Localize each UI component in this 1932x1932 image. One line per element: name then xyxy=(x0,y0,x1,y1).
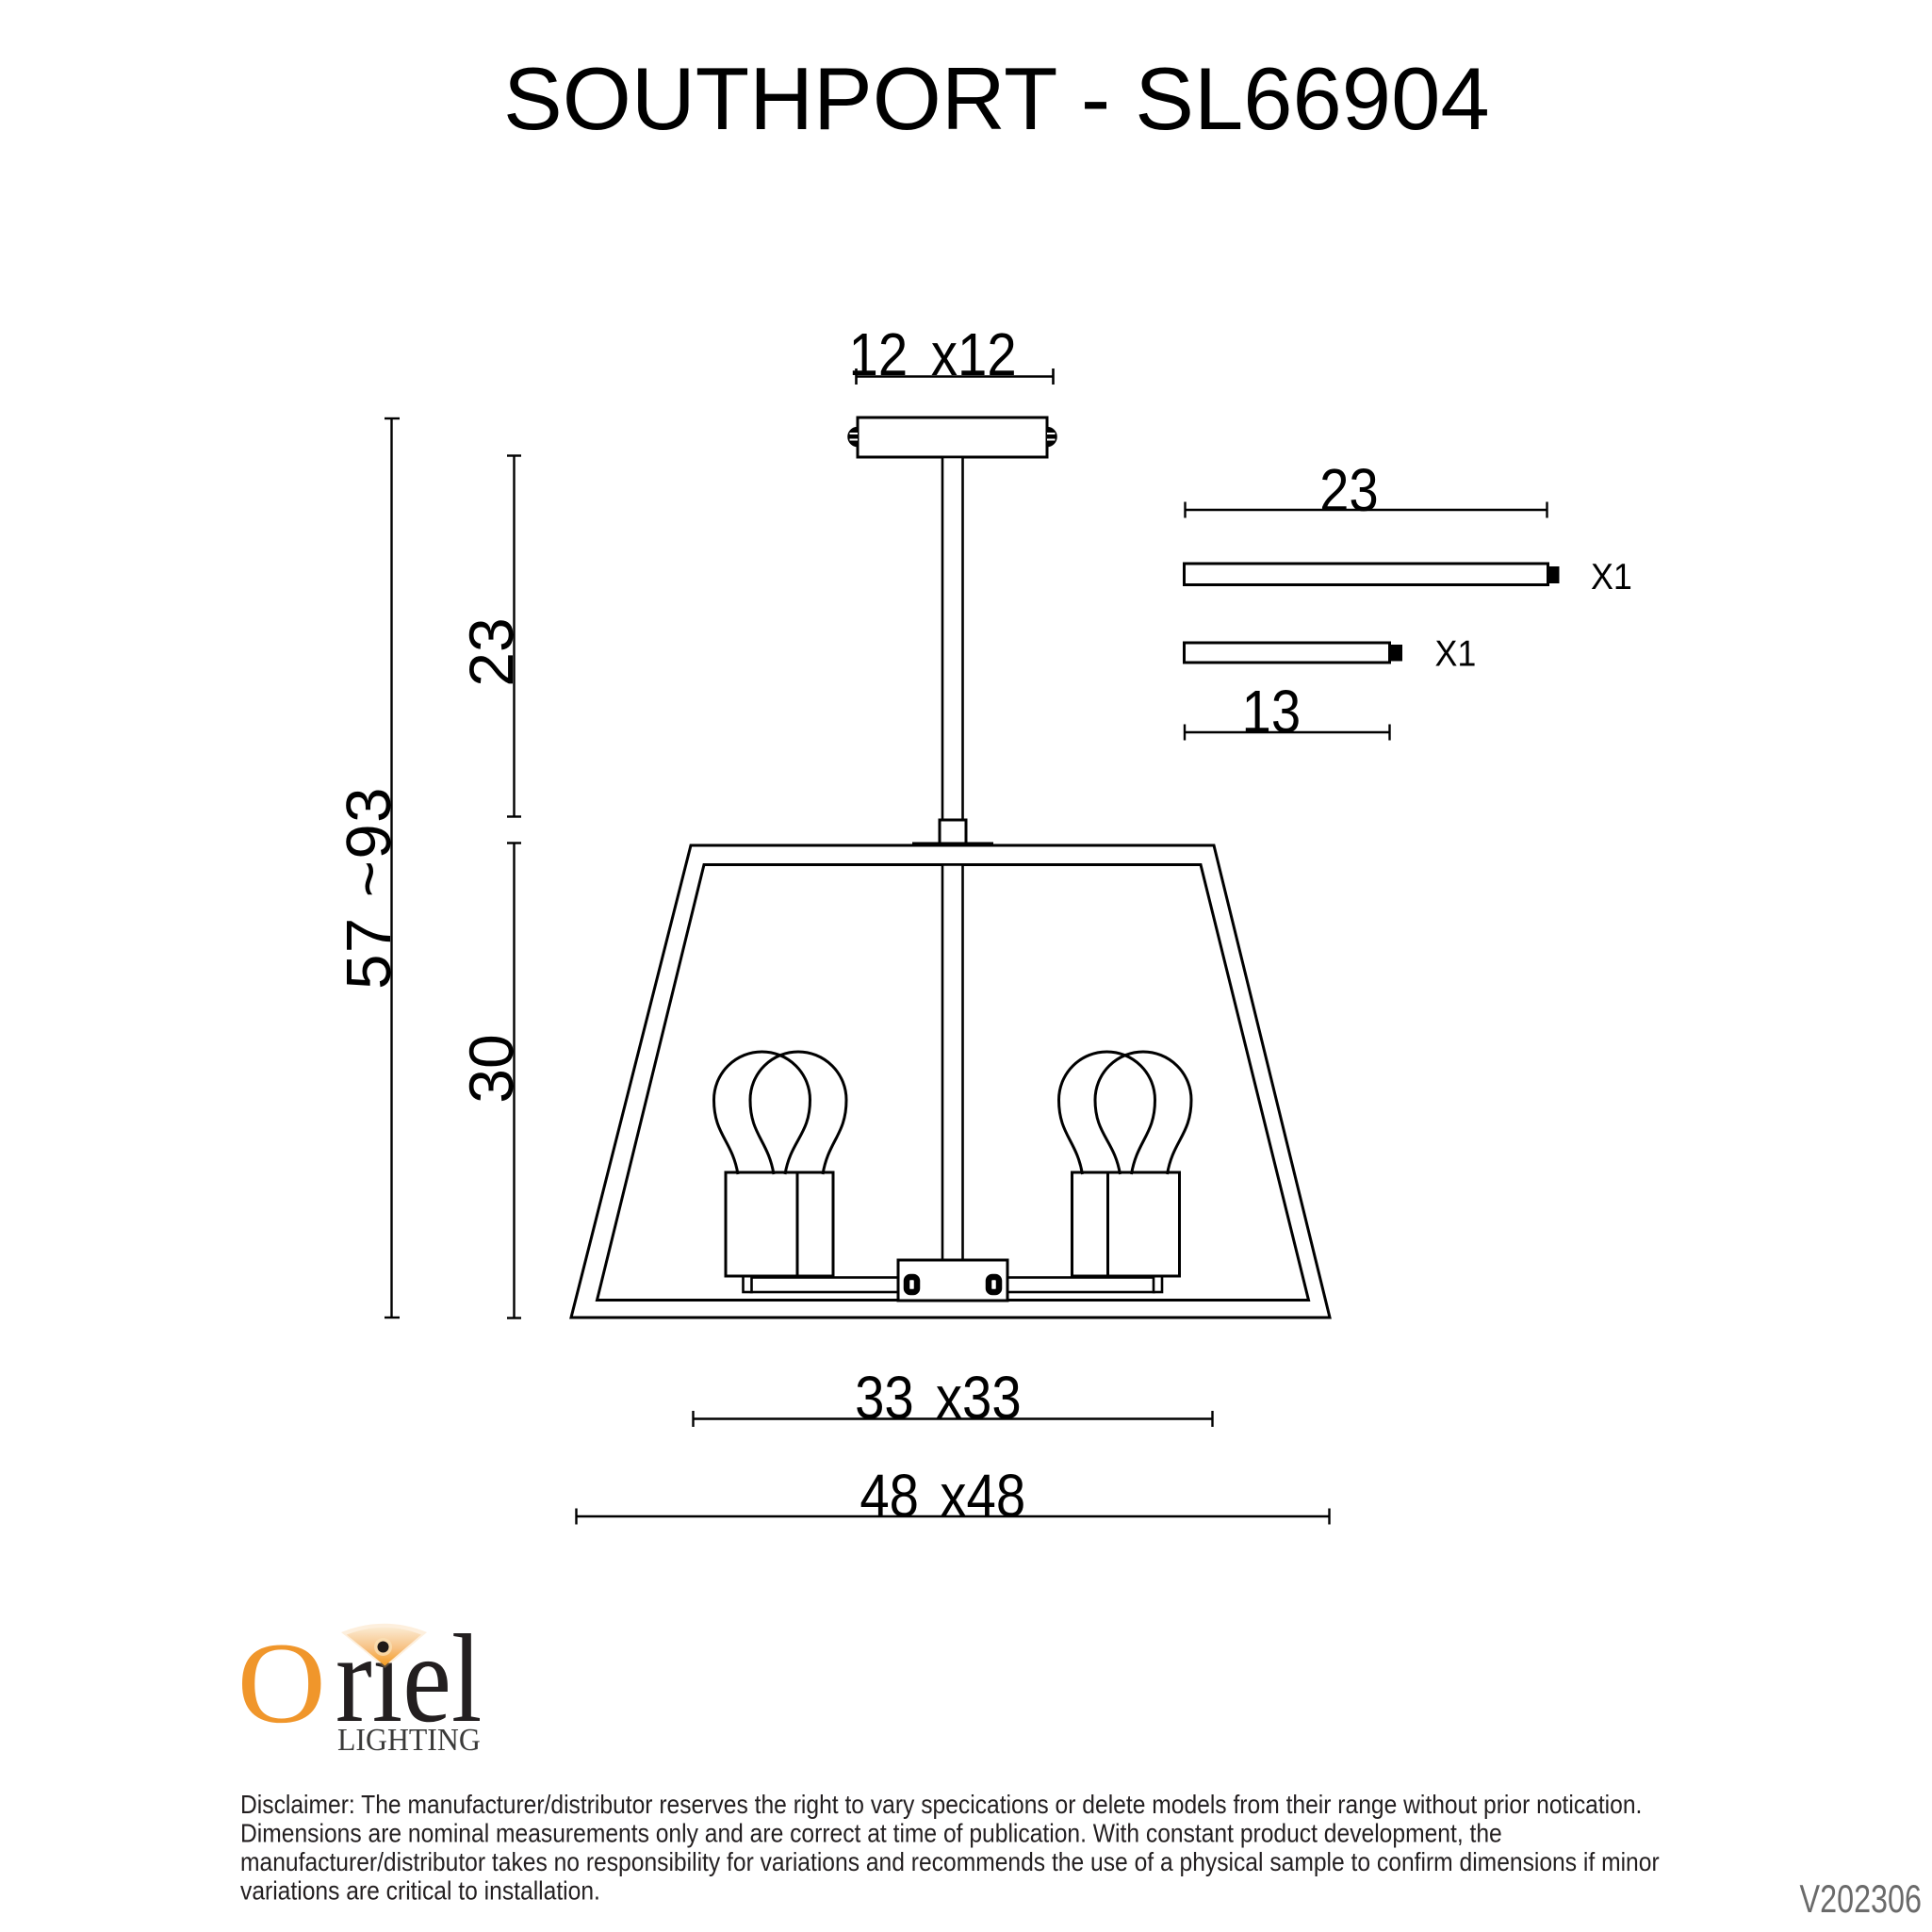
svg-text:variations are critical to ins: variations are critical to installation. xyxy=(240,1875,600,1906)
svg-text:Disclaimer: The manufacturer/d: Disclaimer: The manufacturer/distributor… xyxy=(240,1790,1642,1820)
svg-text:Dimensions are nominal measure: Dimensions are nominal measurements only… xyxy=(240,1818,1502,1848)
svg-text:48: 48 xyxy=(860,1462,919,1530)
svg-text:LIGHTING: LIGHTING xyxy=(337,1723,481,1758)
svg-text:x33: x33 xyxy=(936,1364,1022,1432)
svg-text:V202306: V202306 xyxy=(1800,1876,1922,1921)
svg-text:30: 30 xyxy=(456,1034,526,1103)
svg-text:SOUTHPORT - SL66904: SOUTHPORT - SL66904 xyxy=(503,49,1490,148)
svg-text:x12: x12 xyxy=(931,320,1017,388)
svg-text:X1: X1 xyxy=(1435,632,1477,674)
svg-text:57 ~93: 57 ~93 xyxy=(334,786,404,990)
svg-text:13: 13 xyxy=(1242,678,1302,745)
svg-text:X1: X1 xyxy=(1591,556,1632,598)
svg-text:x48: x48 xyxy=(940,1462,1025,1530)
svg-text:23: 23 xyxy=(1319,456,1379,524)
svg-text:23: 23 xyxy=(456,617,526,686)
svg-text:12: 12 xyxy=(849,320,909,388)
svg-text:O: O xyxy=(237,1619,326,1747)
svg-text:manufacturer/distributor takes: manufacturer/distributor takes no respon… xyxy=(240,1847,1660,1877)
svg-text:33: 33 xyxy=(855,1364,914,1432)
